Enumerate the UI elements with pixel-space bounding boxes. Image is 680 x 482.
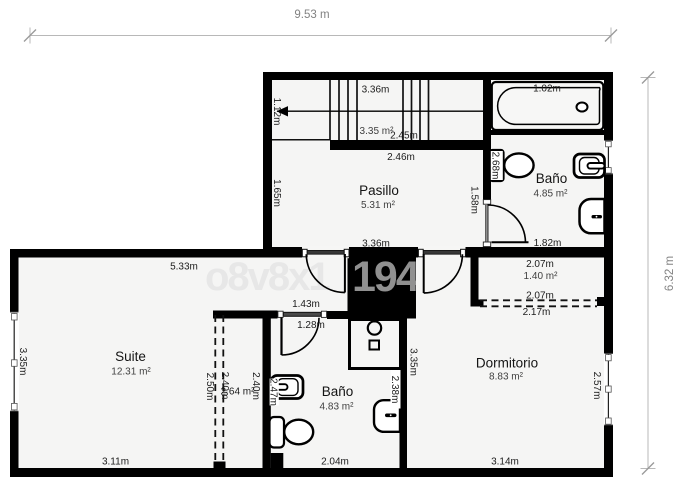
svg-text:12.31 m²: 12.31 m² [111,367,151,378]
svg-text:1.02m: 1.02m [533,84,561,95]
svg-text:2.68m: 2.68m [490,152,501,180]
svg-text:2.64 m²: 2.64 m² [221,387,256,398]
svg-text:Baño: Baño [322,384,354,399]
svg-text:4.85 m²: 4.85 m² [534,189,569,200]
svg-text:Baño: Baño [536,171,568,186]
svg-text:Pasillo: Pasillo [359,183,399,198]
svg-text:2.07m: 2.07m [526,290,554,301]
svg-text:5.33m: 5.33m [170,262,198,273]
svg-text:2.50m: 2.50m [204,373,215,401]
svg-text:2.57m: 2.57m [591,372,602,400]
svg-text:1.65m: 1.65m [271,179,282,207]
svg-text:1.82m: 1.82m [534,238,562,249]
svg-text:2.46m: 2.46m [387,152,415,163]
svg-text:2.47m: 2.47m [268,378,279,406]
svg-text:2.45m: 2.45m [390,131,418,142]
svg-text:4.83 m²: 4.83 m² [320,402,355,413]
svg-text:8.83 m²: 8.83 m² [489,372,524,383]
svg-text:2.17m: 2.17m [523,307,551,318]
svg-text:1.12m: 1.12m [271,98,282,126]
svg-text:Suite: Suite [115,349,146,364]
svg-text:2.04m: 2.04m [321,457,349,468]
svg-text:1.58m: 1.58m [469,186,480,214]
svg-text:2.40m: 2.40m [250,372,261,400]
svg-text:o8v8x1: o8v8x1 [205,255,330,299]
svg-text:3.36m: 3.36m [362,239,390,250]
svg-text:6.32 m: 6.32 m [664,256,676,291]
svg-text:1.43m: 1.43m [292,299,320,310]
svg-text:3.35m: 3.35m [408,348,419,376]
svg-text:3.11m: 3.11m [102,457,129,468]
svg-text:1.28m: 1.28m [297,320,325,331]
svg-text:9.53 m: 9.53 m [294,9,329,21]
svg-text:Dormitorio: Dormitorio [476,356,538,371]
svg-text:3.14m: 3.14m [491,457,519,468]
svg-text:2.07m: 2.07m [526,259,554,270]
svg-text:1.40 m²: 1.40 m² [524,271,559,282]
svg-text:5.31 m²: 5.31 m² [361,200,396,211]
svg-text:194: 194 [352,253,420,301]
svg-text:2.38m: 2.38m [389,376,400,404]
svg-text:3.36m: 3.36m [362,85,390,96]
svg-text:3.35 m²: 3.35 m² [360,126,395,137]
svg-text:3.35m: 3.35m [17,348,28,376]
